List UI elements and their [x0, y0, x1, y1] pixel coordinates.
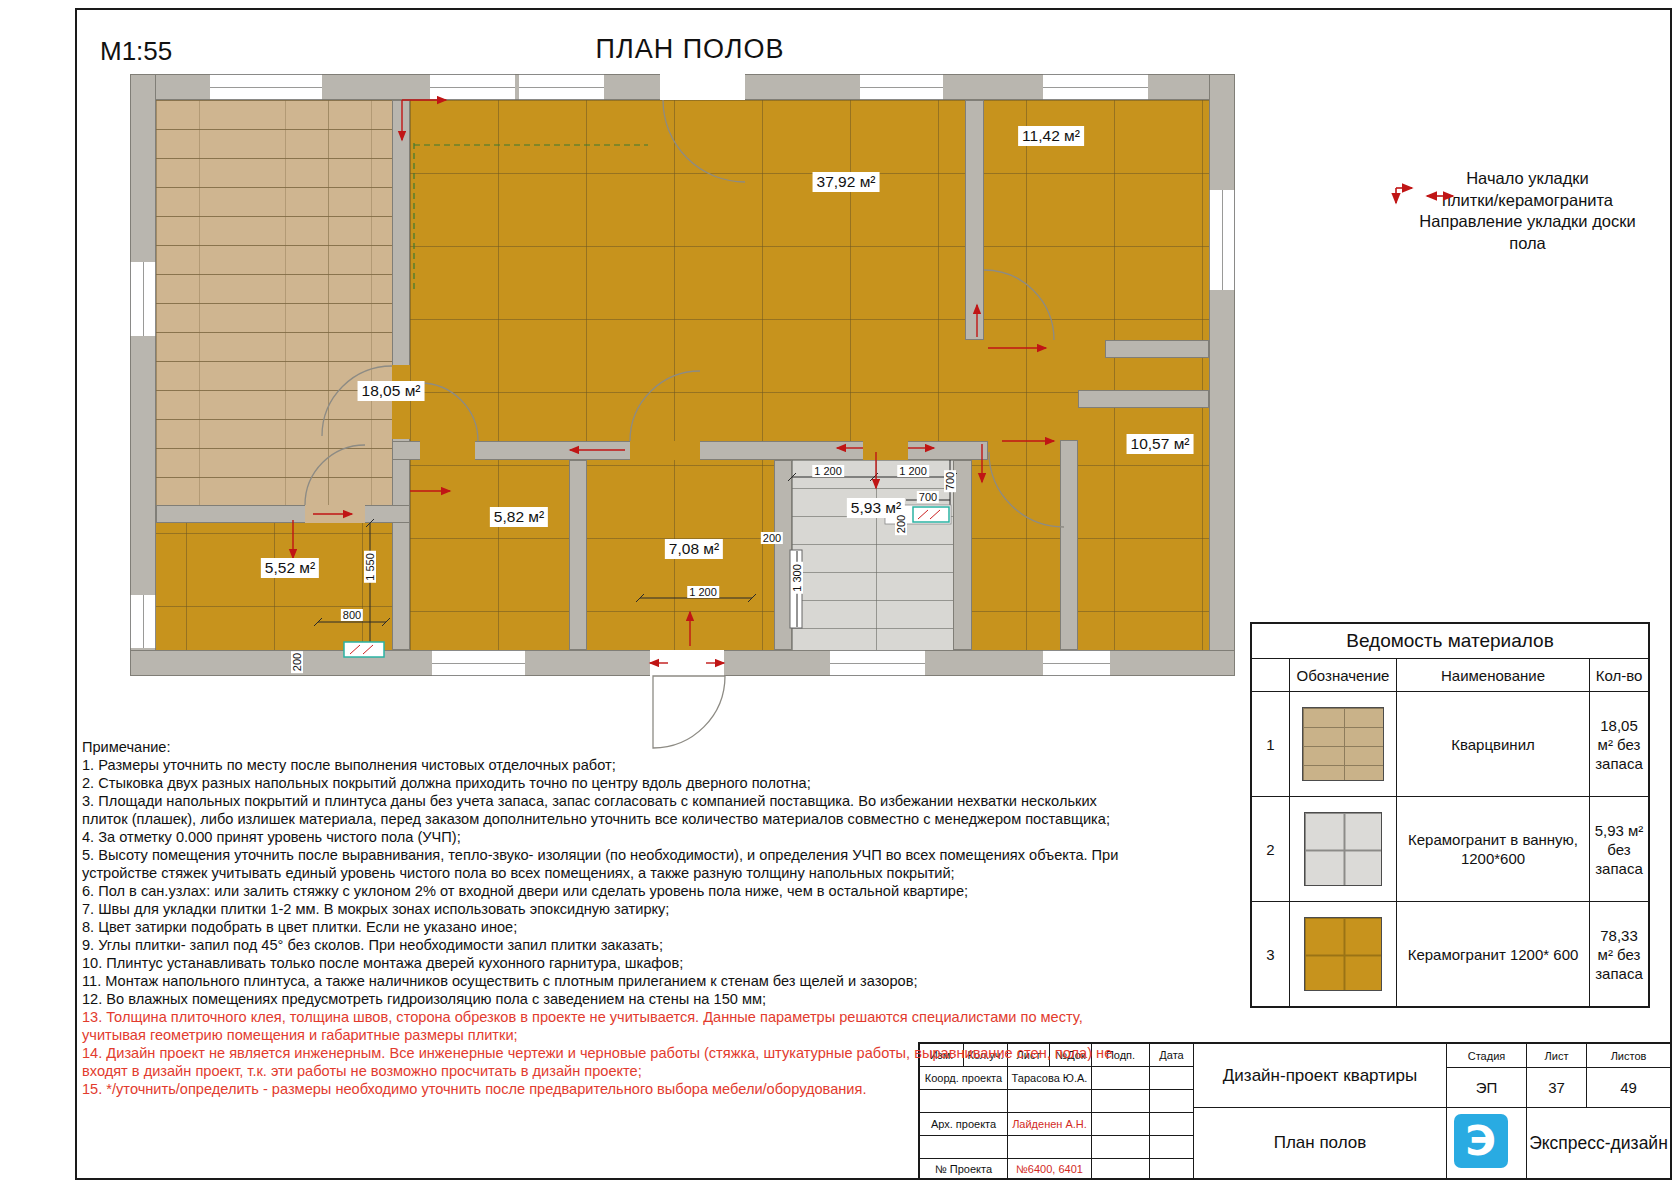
tb-project-name: Дизайн-проект квартиры	[1194, 1044, 1447, 1108]
room-label-5-52: 5,52 м²	[261, 558, 319, 578]
room-label-7-08: 7,08 м²	[665, 539, 723, 559]
drawing-sheet: { "sheet": { "scale": "М1:55", "title": …	[0, 0, 1680, 1187]
window-top-1	[210, 74, 322, 100]
tb-sheet-value: 37	[1527, 1068, 1587, 1108]
room-label-5-82: 5,82 м²	[490, 507, 548, 527]
tb-empty	[1150, 1067, 1194, 1090]
door-opening-bath	[863, 441, 908, 460]
wall-h2	[1105, 340, 1209, 358]
dim-label: 1 200	[897, 465, 929, 477]
balcony-door-opening	[660, 74, 745, 100]
tb-empty	[1150, 1090, 1194, 1113]
material-swatch-cell	[1290, 797, 1397, 901]
window-top-2	[430, 74, 515, 100]
material-swatch-cell	[1290, 692, 1397, 796]
window-top-5	[1043, 74, 1148, 100]
logo-letter: Э	[1466, 1118, 1497, 1164]
material-qty: 5,93 м² без запаса	[1590, 797, 1648, 901]
dim-label: 200	[291, 651, 303, 673]
materials-table-row: 2Керамогранит в ванную, 1200*6005,93 м² …	[1252, 797, 1648, 902]
note-line: 14. Дизайн проект не является инженерным…	[82, 1044, 1142, 1080]
dim-label: 800	[341, 609, 363, 621]
materials-table-header: Обозначение Наименование Кол-во	[1252, 659, 1648, 692]
room-label-11-42: 11,42 м²	[1018, 126, 1084, 146]
door-opening-wood-living	[392, 365, 410, 439]
bathroom-porcelain-swatch	[1304, 812, 1382, 886]
wall-v5	[569, 460, 587, 650]
tb-empty	[1092, 1113, 1150, 1136]
tb-arch-value: Лайденен А.Н.	[1008, 1113, 1092, 1136]
tb-sheets-label: Листов	[1587, 1044, 1670, 1068]
room-label-18-05: 18,05 м²	[358, 381, 425, 401]
materials-table-row: 1Кварцвинил18,05 м² без запаса	[1252, 692, 1648, 797]
material-name: Керамогранит 1200* 600	[1397, 902, 1590, 1006]
room-bathroom-floor	[792, 460, 953, 650]
porcelain-1200x600-swatch	[1304, 917, 1382, 991]
door-opening-708	[630, 441, 700, 460]
tb-sheet-name: План полов	[1194, 1108, 1447, 1178]
tb-empty	[1008, 1136, 1092, 1159]
header-qty: Кол-во	[1590, 659, 1648, 691]
material-name: Кварцвинил	[1397, 692, 1590, 796]
legend-line: плитки/керамогранита	[1385, 190, 1670, 212]
notes-section: Примечание: 1. Размеры уточнить по месту…	[82, 738, 1142, 1098]
material-qty: 78,33 м² без запаса	[1590, 902, 1648, 1006]
material-row-number: 3	[1252, 902, 1290, 1006]
window-right-1	[1209, 190, 1235, 290]
legend-line: Направление укладки доски	[1385, 211, 1670, 233]
legend-line: Начало укладки	[1385, 168, 1670, 190]
note-line: 6. Пол в сан.узлах: или залить стяжку с …	[82, 882, 1142, 900]
material-qty: 18,05 м² без запаса	[1590, 692, 1648, 796]
scale-label: М1:55	[100, 36, 172, 67]
tb-empty	[1092, 1159, 1150, 1178]
tb-sheets-value: 49	[1587, 1068, 1670, 1108]
wall-h3	[1078, 390, 1209, 408]
materials-table-body: 1Кварцвинил18,05 м² без запаса2Керамогра…	[1252, 692, 1648, 1006]
tb-empty	[1092, 1136, 1150, 1159]
window-left-2	[130, 595, 156, 648]
quartzvinyl-plank-swatch	[1302, 707, 1384, 781]
note-line: 12. Во влажных помещениях предусмотреть …	[82, 990, 1142, 1008]
notes-heading: Примечание:	[82, 738, 1142, 756]
tb-empty	[1150, 1136, 1194, 1159]
wall-h1	[156, 505, 410, 523]
note-line: 15. */уточнить/определить - размеры необ…	[82, 1080, 1142, 1098]
note-line: 9. Углы плитки- запил под 45° без сколов…	[82, 936, 1142, 954]
tb-arch-label: Арх. проекта	[920, 1113, 1008, 1136]
header-mark: Обозначение	[1290, 659, 1397, 691]
door-opening-582	[420, 441, 475, 460]
dim-label: 700	[917, 491, 939, 503]
note-line: 7. Швы для укладки плитки 1-2 мм. В мокр…	[82, 900, 1142, 918]
tb-stage-label: Стадия	[1447, 1044, 1527, 1068]
material-name: Керамогранит в ванную, 1200*600	[1397, 797, 1590, 901]
room-5-52-floor	[156, 523, 392, 650]
tb-projnum-value: №6400, 6401	[1008, 1159, 1092, 1178]
entrance-door-opening	[650, 650, 724, 676]
note-line: 5. Высоту помещения уточнить после вырав…	[82, 846, 1142, 882]
window-bottom-1	[432, 650, 525, 676]
note-line: 1. Размеры уточнить по месту после выпол…	[82, 756, 1142, 774]
room-kitchen-living-quartzvinyl	[156, 100, 392, 505]
legend-line: пола	[1385, 233, 1670, 255]
tb-empty	[1150, 1159, 1194, 1178]
room-label-37-92: 37,92 м²	[813, 172, 880, 192]
dim-label: 700	[944, 470, 956, 492]
wall-v6	[774, 460, 792, 650]
room-label-10-57: 10,57 м²	[1127, 434, 1194, 454]
dim-label: 200	[895, 513, 907, 535]
legend: Начало укладки плитки/керамогранита Напр…	[1385, 168, 1670, 254]
material-row-number: 2	[1252, 797, 1290, 901]
wall-v2	[965, 100, 984, 340]
tb-col-data: Дата	[1150, 1044, 1194, 1067]
dim-label: 1 550	[364, 551, 376, 583]
wall-right	[1209, 74, 1235, 676]
note-line: 2. Стыковка двух разных напольных покрыт…	[82, 774, 1142, 792]
dim-label: 200	[761, 532, 783, 544]
tb-brand-name: Экспресс-дизайн	[1527, 1108, 1670, 1178]
note-line: 10. Плинтус устанавливать только после м…	[82, 954, 1142, 972]
window-top-3	[519, 74, 604, 100]
window-bottom-3	[1043, 650, 1110, 676]
door-opening-wood-552	[305, 505, 365, 523]
note-line: 3. Площади напольных покрытий и плинтуса…	[82, 792, 1142, 828]
express-design-logo: Э	[1454, 1114, 1508, 1168]
window-top-4	[860, 74, 943, 100]
dim-label: 1 300	[791, 562, 803, 594]
header-blank	[1252, 659, 1290, 691]
materials-table-row: 3Керамогранит 1200* 60078,33 м² без запа…	[1252, 902, 1648, 1006]
wall-v3	[1060, 440, 1078, 650]
wall-left	[130, 74, 156, 676]
note-line: 13. Толщина плиточного клея, толщина шво…	[82, 1008, 1142, 1044]
material-swatch-cell	[1290, 902, 1397, 1006]
tb-stage-value: ЭП	[1447, 1068, 1527, 1108]
header-name: Наименование	[1397, 659, 1590, 691]
material-row-number: 1	[1252, 692, 1290, 796]
window-left-1	[130, 262, 156, 336]
dim-label: 1 200	[687, 586, 719, 598]
tb-projnum-label: № Проекта	[920, 1159, 1008, 1178]
window-bottom-2	[830, 650, 925, 676]
page-title: ПЛАН ПОЛОВ	[470, 34, 910, 65]
tb-sheet-label: Лист	[1527, 1044, 1587, 1068]
note-line: 4. За отметку 0.000 принят уровень чисто…	[82, 828, 1142, 846]
dim-label: 1 200	[812, 465, 844, 477]
materials-table: Ведомость материалов Обозначение Наимено…	[1250, 622, 1650, 1008]
materials-table-title: Ведомость материалов	[1252, 624, 1648, 659]
note-line: 8. Цвет затирки подобрать в цвет плитки.…	[82, 918, 1142, 936]
tb-empty	[920, 1136, 1008, 1159]
tb-empty	[1150, 1113, 1194, 1136]
note-line: 11. Монтаж напольного плинтуса, а также …	[82, 972, 1142, 990]
